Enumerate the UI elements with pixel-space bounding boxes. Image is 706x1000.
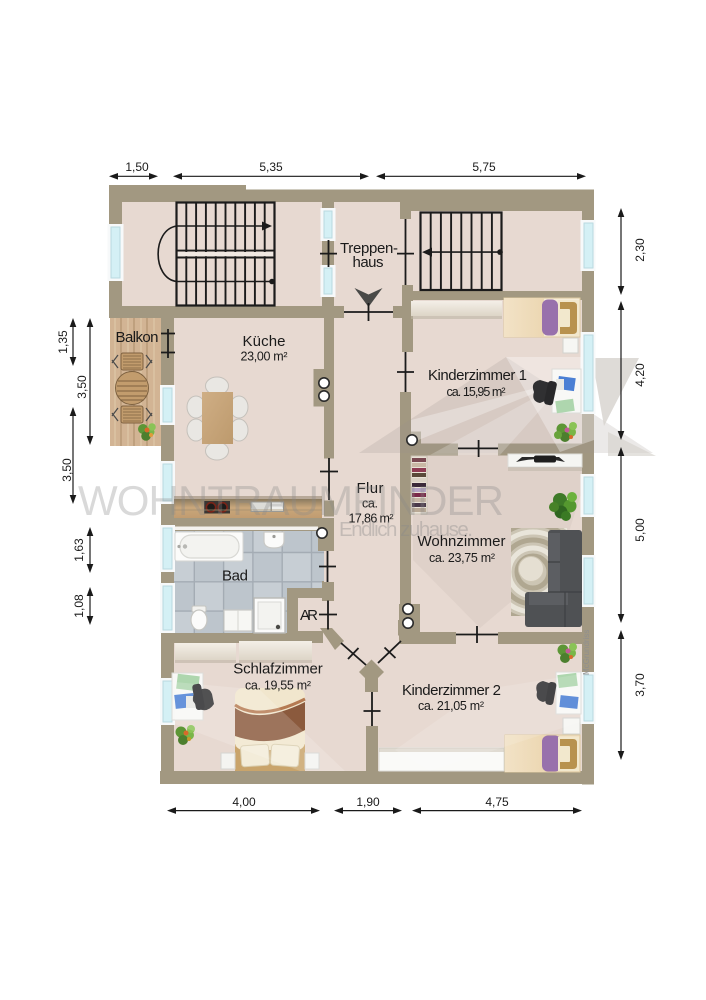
svg-text:4,75: 4,75 [485, 795, 509, 809]
svg-text:Kinderzimmer 1: Kinderzimmer 1 [428, 367, 527, 384]
svg-text:1,35: 1,35 [56, 330, 70, 354]
svg-text:Kinderzimmer 2: Kinderzimmer 2 [402, 682, 501, 699]
svg-text:1,90: 1,90 [356, 795, 380, 809]
svg-text:5,35: 5,35 [259, 160, 283, 174]
svg-text:WOHNTRAUMFINDER: WOHNTRAUMFINDER [78, 477, 505, 524]
svg-text:5,75: 5,75 [472, 160, 496, 174]
svg-text:Balkon: Balkon [116, 329, 159, 346]
svg-text:ca. 19,55 m²: ca. 19,55 m² [245, 679, 311, 693]
svg-text:3,50: 3,50 [75, 375, 89, 399]
svg-text:3,50: 3,50 [60, 458, 74, 482]
svg-text:ca. 15,95 m²: ca. 15,95 m² [447, 385, 506, 399]
svg-text:haus: haus [353, 254, 384, 271]
svg-text:3,70: 3,70 [633, 673, 647, 697]
svg-text:Endlich zuhause.: Endlich zuhause. [339, 518, 473, 541]
svg-text:4,00: 4,00 [232, 795, 256, 809]
svg-text:1,08: 1,08 [72, 594, 86, 618]
svg-text:4,20: 4,20 [633, 363, 647, 387]
svg-text:ca. 23,75 m²: ca. 23,75 m² [429, 551, 495, 565]
svg-text:AR: AR [300, 607, 318, 624]
svg-text:5,00: 5,00 [633, 518, 647, 542]
svg-text:2,30: 2,30 [633, 238, 647, 262]
svg-text:Küche: Küche [243, 333, 286, 350]
svg-text:McGrundriss: McGrundriss [582, 630, 591, 675]
svg-text:ca. 21,05 m²: ca. 21,05 m² [418, 699, 484, 713]
svg-text:1,63: 1,63 [72, 538, 86, 562]
svg-text:Schlafzimmer: Schlafzimmer [233, 661, 323, 678]
svg-text:1,50: 1,50 [125, 160, 149, 174]
svg-text:Bad: Bad [222, 568, 248, 585]
svg-text:23,00 m²: 23,00 m² [241, 350, 288, 364]
